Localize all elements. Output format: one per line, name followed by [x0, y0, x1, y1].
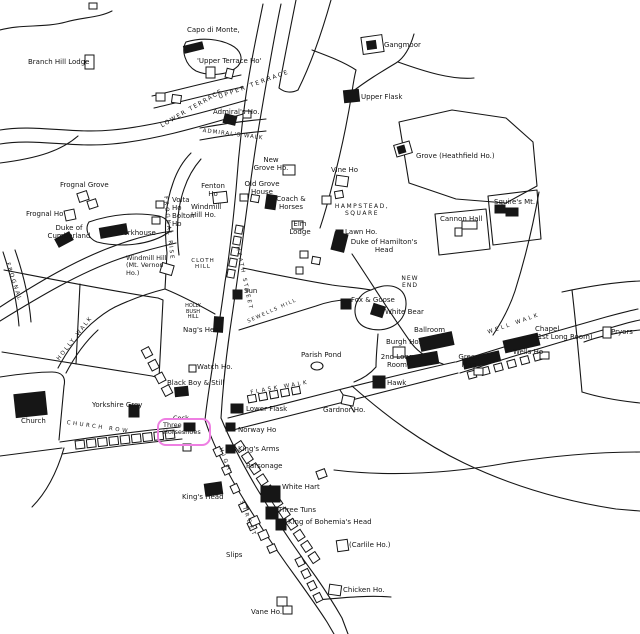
- building-admirals-walk-house: [243, 111, 251, 118]
- building-gardnor-ho: [341, 395, 355, 406]
- building-slips-house-b: [258, 530, 269, 541]
- road-holly-walk-a: [58, 307, 115, 368]
- map-buildings: [14, 3, 611, 614]
- building-branch-hill-lodge: [85, 55, 94, 69]
- building-hawk: [373, 376, 385, 388]
- building-upper-flask: [343, 89, 359, 103]
- building-squires-mt-b: [506, 208, 518, 216]
- building-carlile-ho: [336, 539, 348, 551]
- road-frognal-rise-b: [177, 159, 201, 255]
- building-cannon-hall-a: [462, 221, 477, 229]
- building-kings-arms: [226, 445, 235, 453]
- road-heath-street-west: [205, 4, 263, 420]
- building-old-grove-house-b: [250, 194, 259, 202]
- building-lower-terrace-house-b: [171, 94, 181, 103]
- building-white-hart: [261, 486, 280, 502]
- building-coach-and-horses: [265, 194, 277, 209]
- building-vine-ho: [335, 175, 348, 187]
- building-fox-and-goose: [341, 299, 351, 309]
- hampstead-map: Branch Hill LodgeCapo di Monte,'Upper Te…: [0, 0, 640, 634]
- highlight-box[interactable]: Three Horseshoes: [157, 418, 211, 446]
- building-kings-head: [204, 482, 223, 496]
- building-cannon-hall-b: [455, 228, 462, 236]
- map-linework: [0, 0, 640, 634]
- building-new-end-house-a: [300, 251, 308, 258]
- building-chicken-ho: [328, 584, 341, 596]
- road-flask-walk-a: [228, 362, 455, 418]
- building-new-grove-ho: [283, 165, 295, 175]
- building-old-grove-house-a: [240, 194, 248, 201]
- building-workhouse: [99, 224, 127, 239]
- building-fenton-ho: [212, 191, 227, 203]
- building-hampstead-sq-house-a: [322, 196, 331, 204]
- building-slips-house-c: [267, 544, 277, 554]
- building-lawn-ho: [336, 230, 343, 236]
- building-church: [14, 391, 47, 417]
- building-upper-terrace-ho-a: [206, 67, 215, 78]
- road-top-left: [0, 11, 112, 30]
- building-green-man-small: [474, 368, 483, 375]
- building-vane-ho-b: [283, 606, 292, 614]
- building-grove-heathfield-inner: [397, 145, 406, 154]
- building-nags-head: [213, 317, 223, 333]
- building-white-bear: [371, 303, 386, 317]
- road-frognal-rise-a: [165, 153, 191, 253]
- building-king-of-bohemias-head: [276, 519, 286, 530]
- building-burgh-ho: [393, 347, 405, 357]
- building-parsonage-house: [316, 469, 327, 480]
- parish-pond-shape: [311, 362, 323, 370]
- building-ballroom: [419, 332, 454, 352]
- building-upper-terrace-ho-b: [225, 68, 234, 78]
- building-hampstead-sq-house-b: [334, 190, 343, 198]
- terrace-houses: [75, 225, 543, 603]
- road-high-street-west: [205, 420, 334, 634]
- building-top-left-house: [89, 3, 97, 9]
- building-frognal-ho: [64, 209, 76, 221]
- building-duke-of-cumberland: [55, 232, 73, 247]
- building-frognal-grove-b: [87, 199, 98, 209]
- building-new-end-house-b: [311, 256, 320, 264]
- building-yorkshire-grey: [129, 405, 139, 417]
- building-gangmoor-inner: [366, 40, 376, 49]
- building-capo-di-monte: [183, 42, 203, 53]
- building-second-long-room: [406, 351, 439, 368]
- building-lower-terrace-house-a: [156, 93, 165, 101]
- building-watch-ho: [189, 365, 196, 372]
- building-mt-vernon-ho: [160, 263, 174, 276]
- building-squires-mt-a: [495, 205, 505, 213]
- highlight-label-line2: Horseshoes: [159, 429, 209, 436]
- building-new-end-house-c: [296, 267, 303, 274]
- building-pryors: [603, 327, 611, 338]
- road-admirals-walk-b: [200, 131, 266, 140]
- building-wells-ho-small: [540, 352, 549, 359]
- road-well-walk-b: [460, 320, 640, 373]
- building-sun: [233, 290, 242, 299]
- map-drawing: [0, 0, 640, 634]
- building-frognal-grove-a: [77, 191, 89, 203]
- building-vane-ho-a: [277, 597, 287, 606]
- building-volta-ho: [156, 201, 164, 208]
- building-lower-flask: [231, 404, 243, 413]
- field-grove: [399, 110, 537, 203]
- building-bolton-ho: [152, 217, 160, 224]
- building-elm-lodge: [292, 221, 303, 229]
- building-three-tuns: [266, 507, 278, 519]
- building-norway-ho: [226, 423, 235, 431]
- building-black-boy-and-still: [175, 386, 189, 396]
